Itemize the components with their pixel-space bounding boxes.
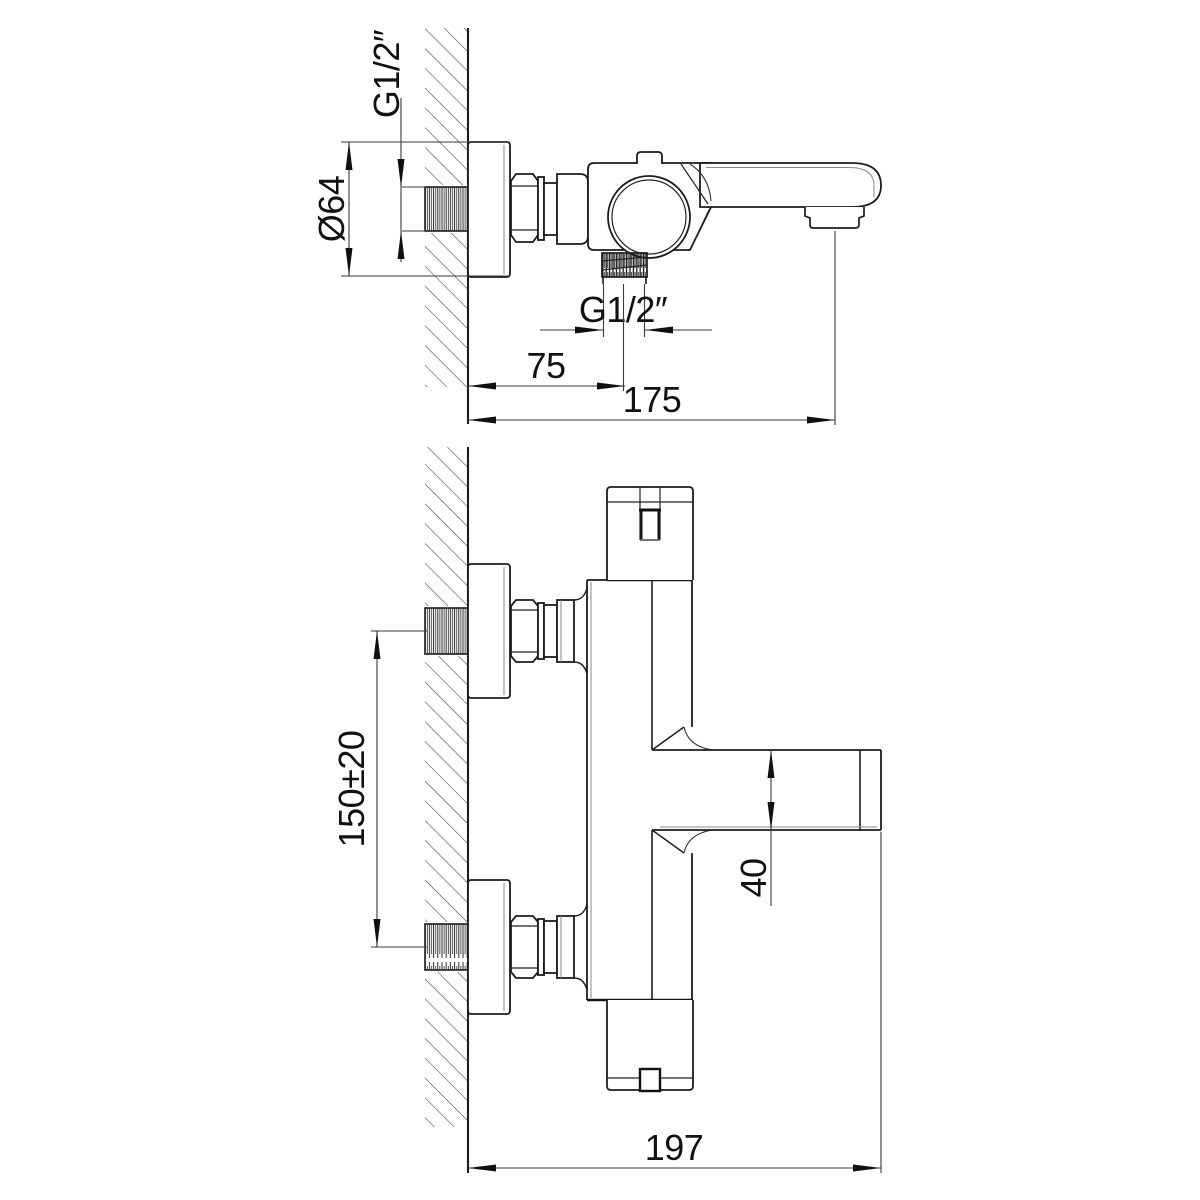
dim-outlet-thread: G1/2″ <box>540 284 712 337</box>
flow-knob-front <box>607 1000 693 1091</box>
drawing-canvas: G1/2″ Ø64 G1/2″ 75 <box>0 0 1200 1200</box>
flow-knob-tab <box>640 1069 660 1091</box>
arrowhead <box>468 1165 496 1172</box>
front-view: 150±20 40 197 <box>331 447 881 1173</box>
dim-label-wall-to-spout: 175 <box>623 379 682 420</box>
dim-label-wall-to-outlet: 75 <box>526 345 565 386</box>
spout-aerator-side <box>805 207 864 228</box>
spout-front <box>652 750 881 830</box>
arrowhead <box>346 248 353 276</box>
dim-spout-height: 40 <box>733 750 775 906</box>
upper-inlet-thread <box>425 608 468 654</box>
arrowhead <box>346 142 353 170</box>
temperature-knob-side <box>608 176 690 258</box>
arrowhead <box>468 417 496 424</box>
arrowhead <box>468 383 496 390</box>
arrowhead <box>768 802 775 830</box>
arrowhead <box>398 159 405 187</box>
arrowhead <box>807 417 835 424</box>
temperature-knob-front <box>607 487 693 580</box>
spout-side <box>700 163 881 207</box>
dim-label-flange-diameter: Ø64 <box>311 176 352 243</box>
arrowhead <box>398 231 405 259</box>
outlet-thread-side <box>602 253 647 277</box>
dim-inlet-thread: G1/2″ <box>366 29 426 262</box>
dim-label-inlet-spacing: 150±20 <box>331 731 372 848</box>
arrowhead <box>768 750 775 778</box>
inlet-pipe-side <box>423 185 469 233</box>
mixer-body-side <box>588 152 881 284</box>
wall-hatch-front <box>425 447 468 1127</box>
dim-inlet-spacing: 150±20 <box>331 631 427 947</box>
connection-nut-side <box>511 174 588 244</box>
dim-label-spout-height: 40 <box>733 858 774 897</box>
arrowhead <box>853 1165 881 1172</box>
wall-flange-side <box>468 142 510 277</box>
knob-tab-side <box>637 152 662 164</box>
arrowhead <box>374 631 381 659</box>
arrowhead <box>374 919 381 947</box>
wall-section-front <box>425 447 468 1173</box>
mixer-body-front <box>587 580 712 1000</box>
arrowhead <box>597 383 625 390</box>
side-view: G1/2″ Ø64 G1/2″ 75 <box>311 28 881 425</box>
dim-label-total-depth: 197 <box>645 1127 704 1168</box>
faucet-technical-drawing: G1/2″ Ø64 G1/2″ 75 <box>0 0 1200 1200</box>
inlet-thread-side <box>425 187 468 231</box>
lower-inlet-thread <box>425 924 468 970</box>
dim-label-inlet-thread: G1/2″ <box>366 29 407 118</box>
